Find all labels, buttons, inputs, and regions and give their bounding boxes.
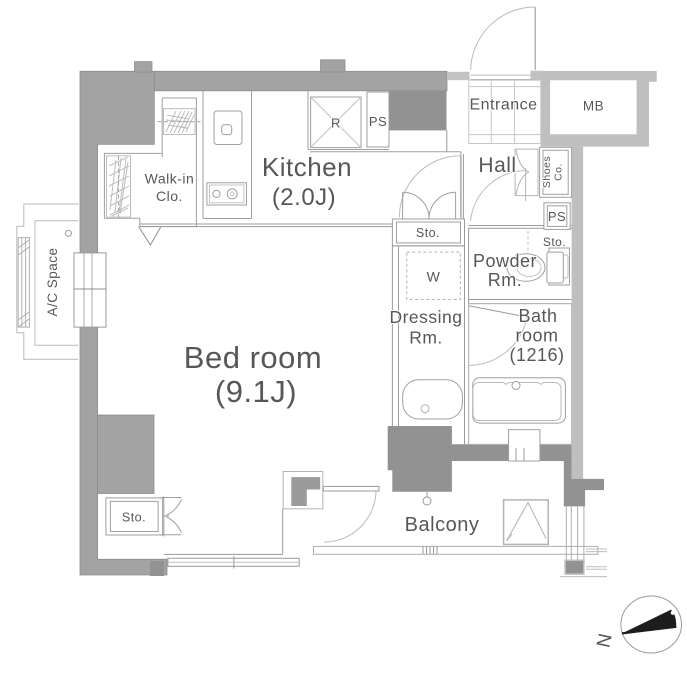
svg-text:PS: PS [369, 114, 387, 129]
svg-text:Rm.: Rm. [488, 270, 523, 290]
svg-text:(1216): (1216) [509, 345, 564, 365]
svg-text:A/C Space: A/C Space [45, 247, 60, 316]
svg-text:Kitchen: Kitchen [262, 152, 352, 182]
svg-text:Rm.: Rm. [409, 328, 443, 348]
svg-text:room: room [515, 326, 558, 346]
svg-text:MB: MB [583, 99, 604, 114]
svg-text:Sto.: Sto. [543, 235, 566, 249]
svg-text:Balcony: Balcony [405, 514, 480, 536]
svg-text:Powder: Powder [473, 251, 537, 271]
svg-text:(2.0J): (2.0J) [272, 184, 336, 211]
svg-text:Dressing: Dressing [389, 307, 462, 327]
svg-text:Bed room: Bed room [184, 340, 322, 375]
svg-text:Sto.: Sto. [122, 511, 146, 525]
svg-text:Walk-in: Walk-in [145, 171, 195, 187]
svg-text:(9.1J): (9.1J) [215, 374, 297, 409]
svg-text:PS: PS [548, 209, 566, 224]
svg-text:Clo.: Clo. [156, 188, 183, 204]
svg-text:Sto.: Sto. [416, 226, 440, 240]
svg-text:W: W [427, 269, 441, 285]
svg-text:Hall: Hall [478, 154, 516, 177]
svg-text:Co.: Co. [553, 163, 565, 181]
svg-text:Shoes: Shoes [541, 156, 553, 188]
svg-text:R: R [331, 116, 341, 131]
svg-text:Entrance: Entrance [469, 97, 537, 114]
svg-text:Bath: Bath [518, 306, 557, 326]
